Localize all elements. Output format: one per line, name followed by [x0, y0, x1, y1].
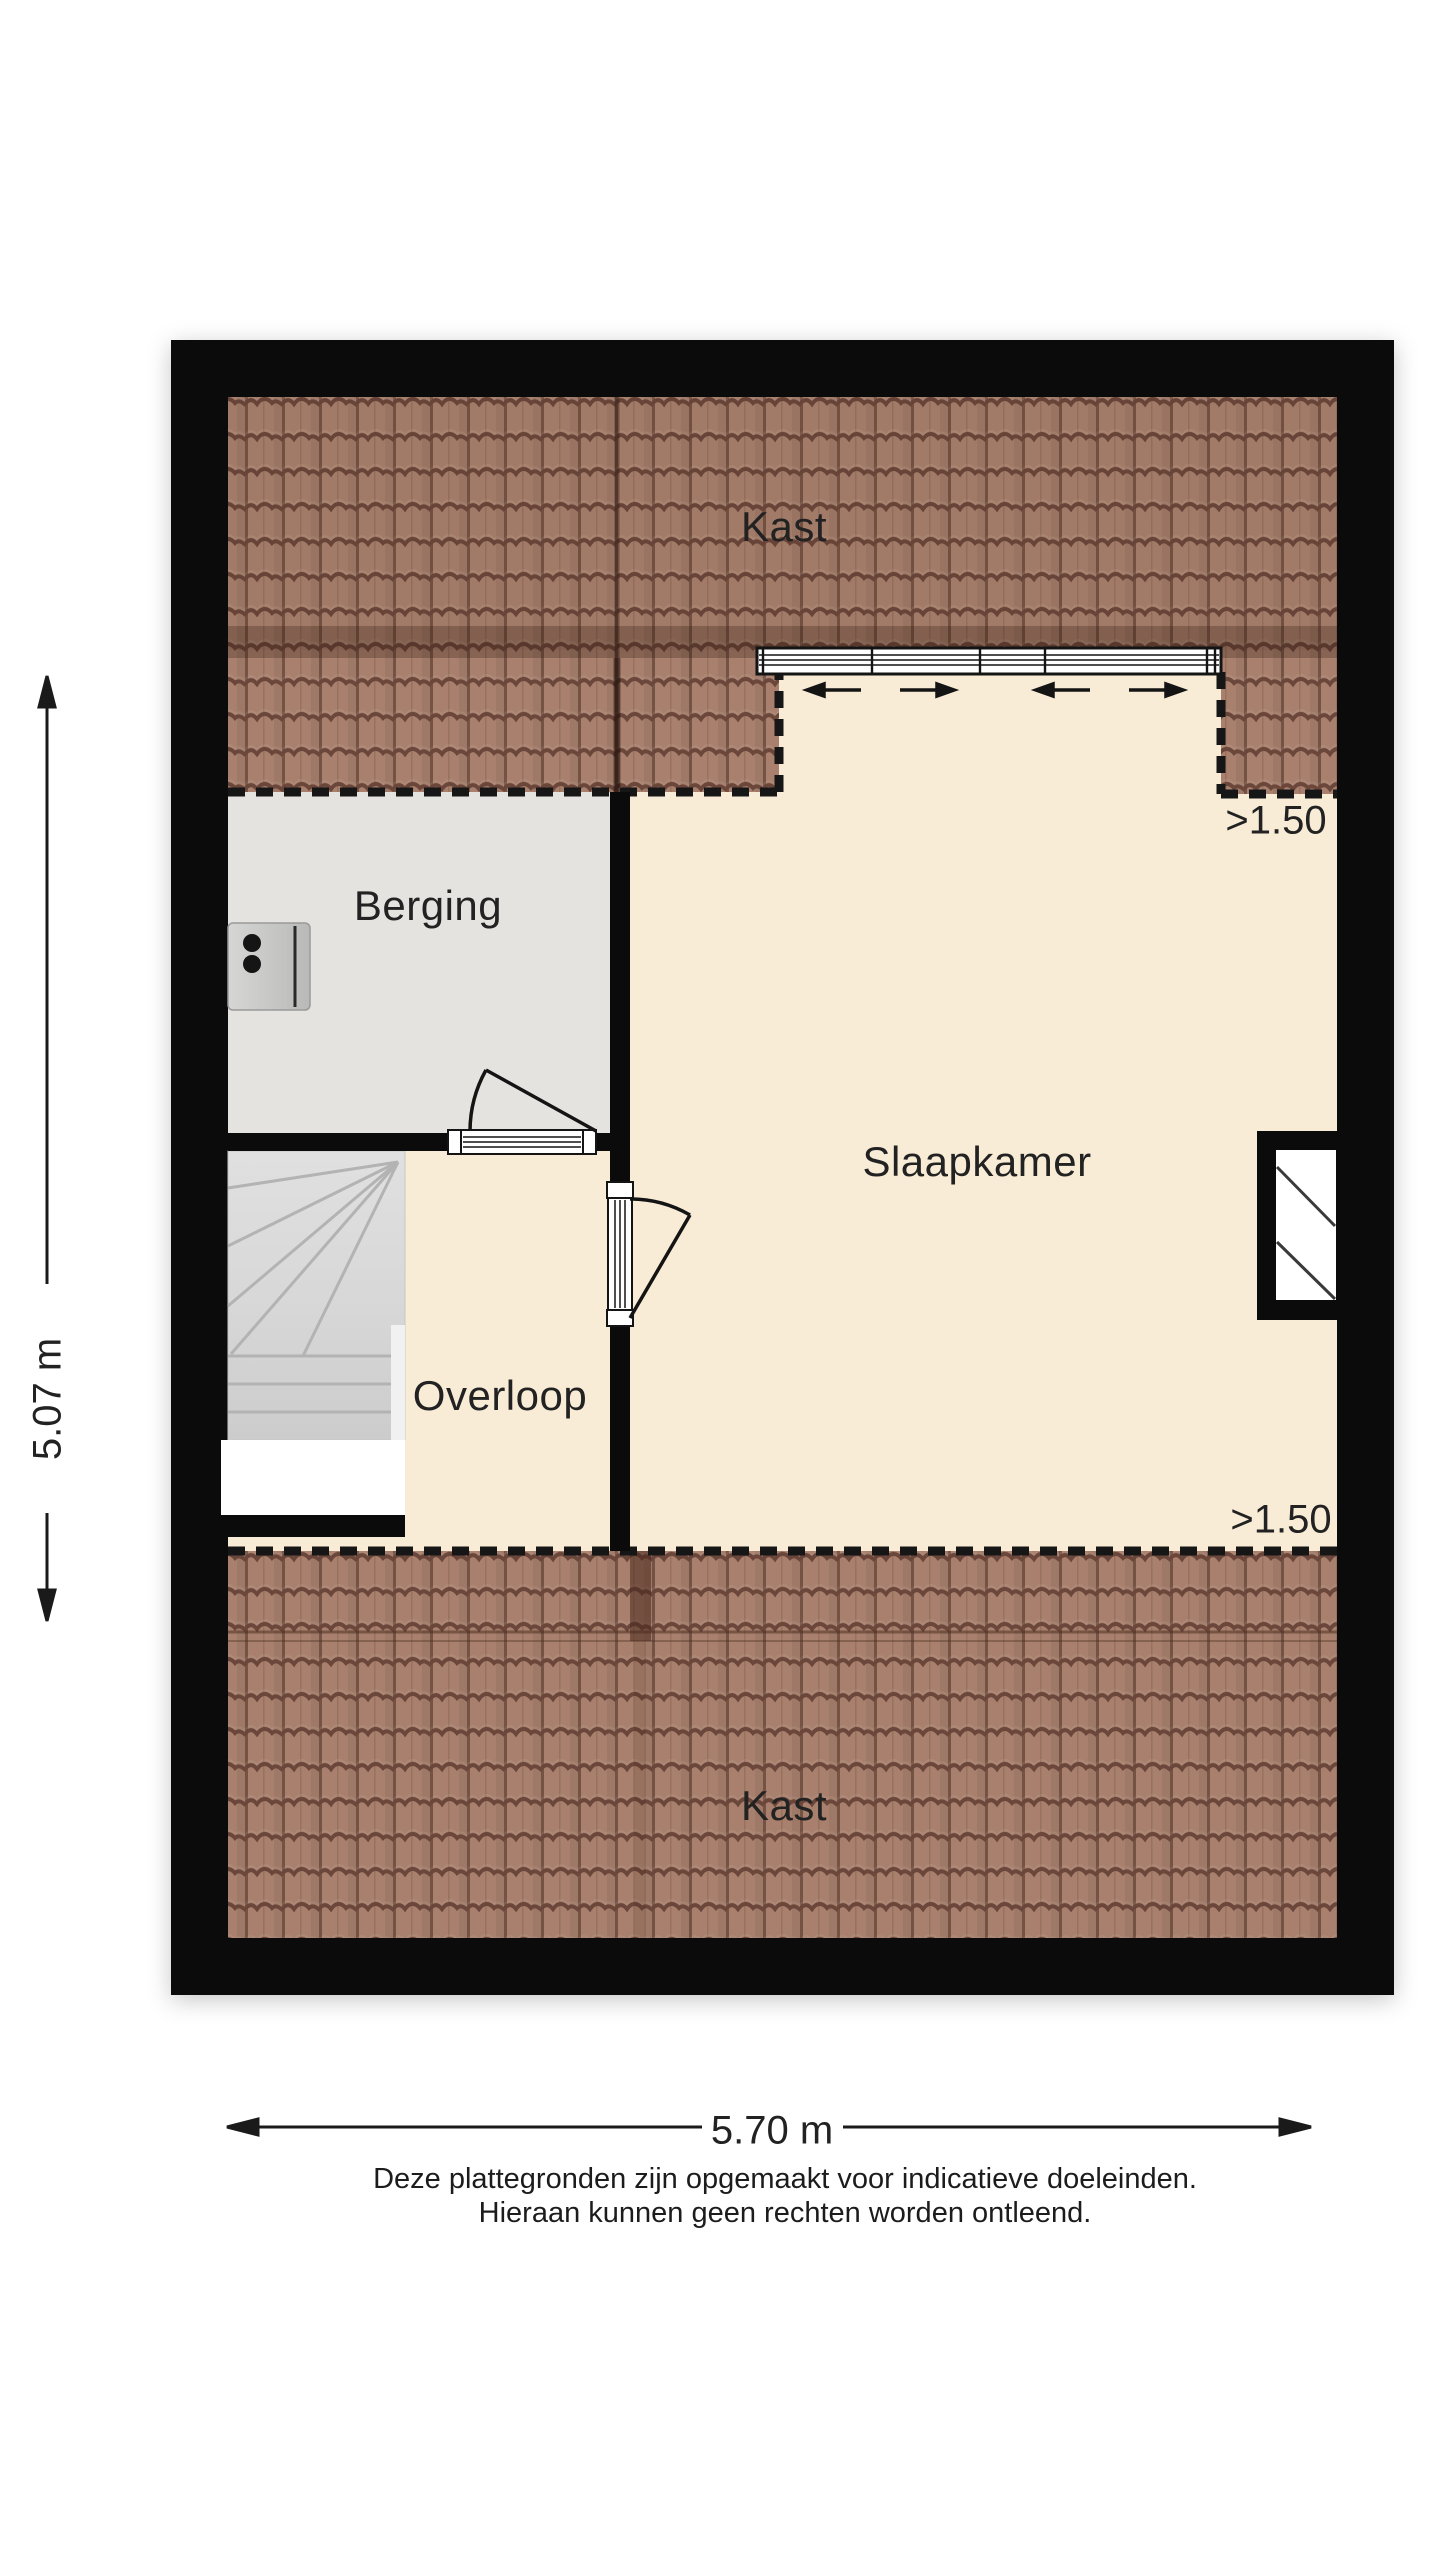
floorplan-canvas — [171, 340, 1394, 1995]
disclaimer-text: Deze plattegronden zijn opgemaakt voor i… — [373, 2162, 1197, 2230]
dormer-window — [757, 648, 1221, 674]
disclaimer-line-1: Deze plattegronden zijn opgemaakt voor i… — [373, 2162, 1197, 2196]
room-label-berging: Berging — [354, 882, 502, 930]
stairs-railing — [391, 1325, 405, 1440]
roof-area-bottom — [228, 1551, 1337, 1938]
width-dimension-label: 5.70 m — [711, 2109, 833, 2154]
room-label-overloop: Overloop — [413, 1372, 587, 1420]
wall-under-roof — [630, 1551, 651, 1641]
power-socket-icon — [228, 923, 310, 1010]
height-dimension-label: 5.07 m — [26, 1338, 71, 1460]
vertical-dimension-arrow — [39, 676, 55, 1621]
roof-window-icon — [1257, 1131, 1337, 1320]
height-clearance-label-top: >1.50 — [1225, 799, 1326, 844]
room-label-slaapkamer: Slaapkamer — [862, 1138, 1091, 1186]
stairs — [221, 1151, 405, 1537]
room-label-kast-top: Kast — [741, 503, 827, 551]
room-label-kast-bottom: Kast — [741, 1782, 827, 1830]
height-clearance-label-bottom: >1.50 — [1230, 1498, 1331, 1543]
floorplan-page: Kast Berging Slaapkamer Overloop Kast >1… — [0, 0, 1440, 2560]
disclaimer-line-2: Hieraan kunnen geen rechten worden ontle… — [373, 2196, 1197, 2230]
stairwell-wall-stub — [228, 1515, 405, 1537]
stairwell-void — [221, 1440, 405, 1515]
floorplan-svg — [171, 340, 1394, 1995]
